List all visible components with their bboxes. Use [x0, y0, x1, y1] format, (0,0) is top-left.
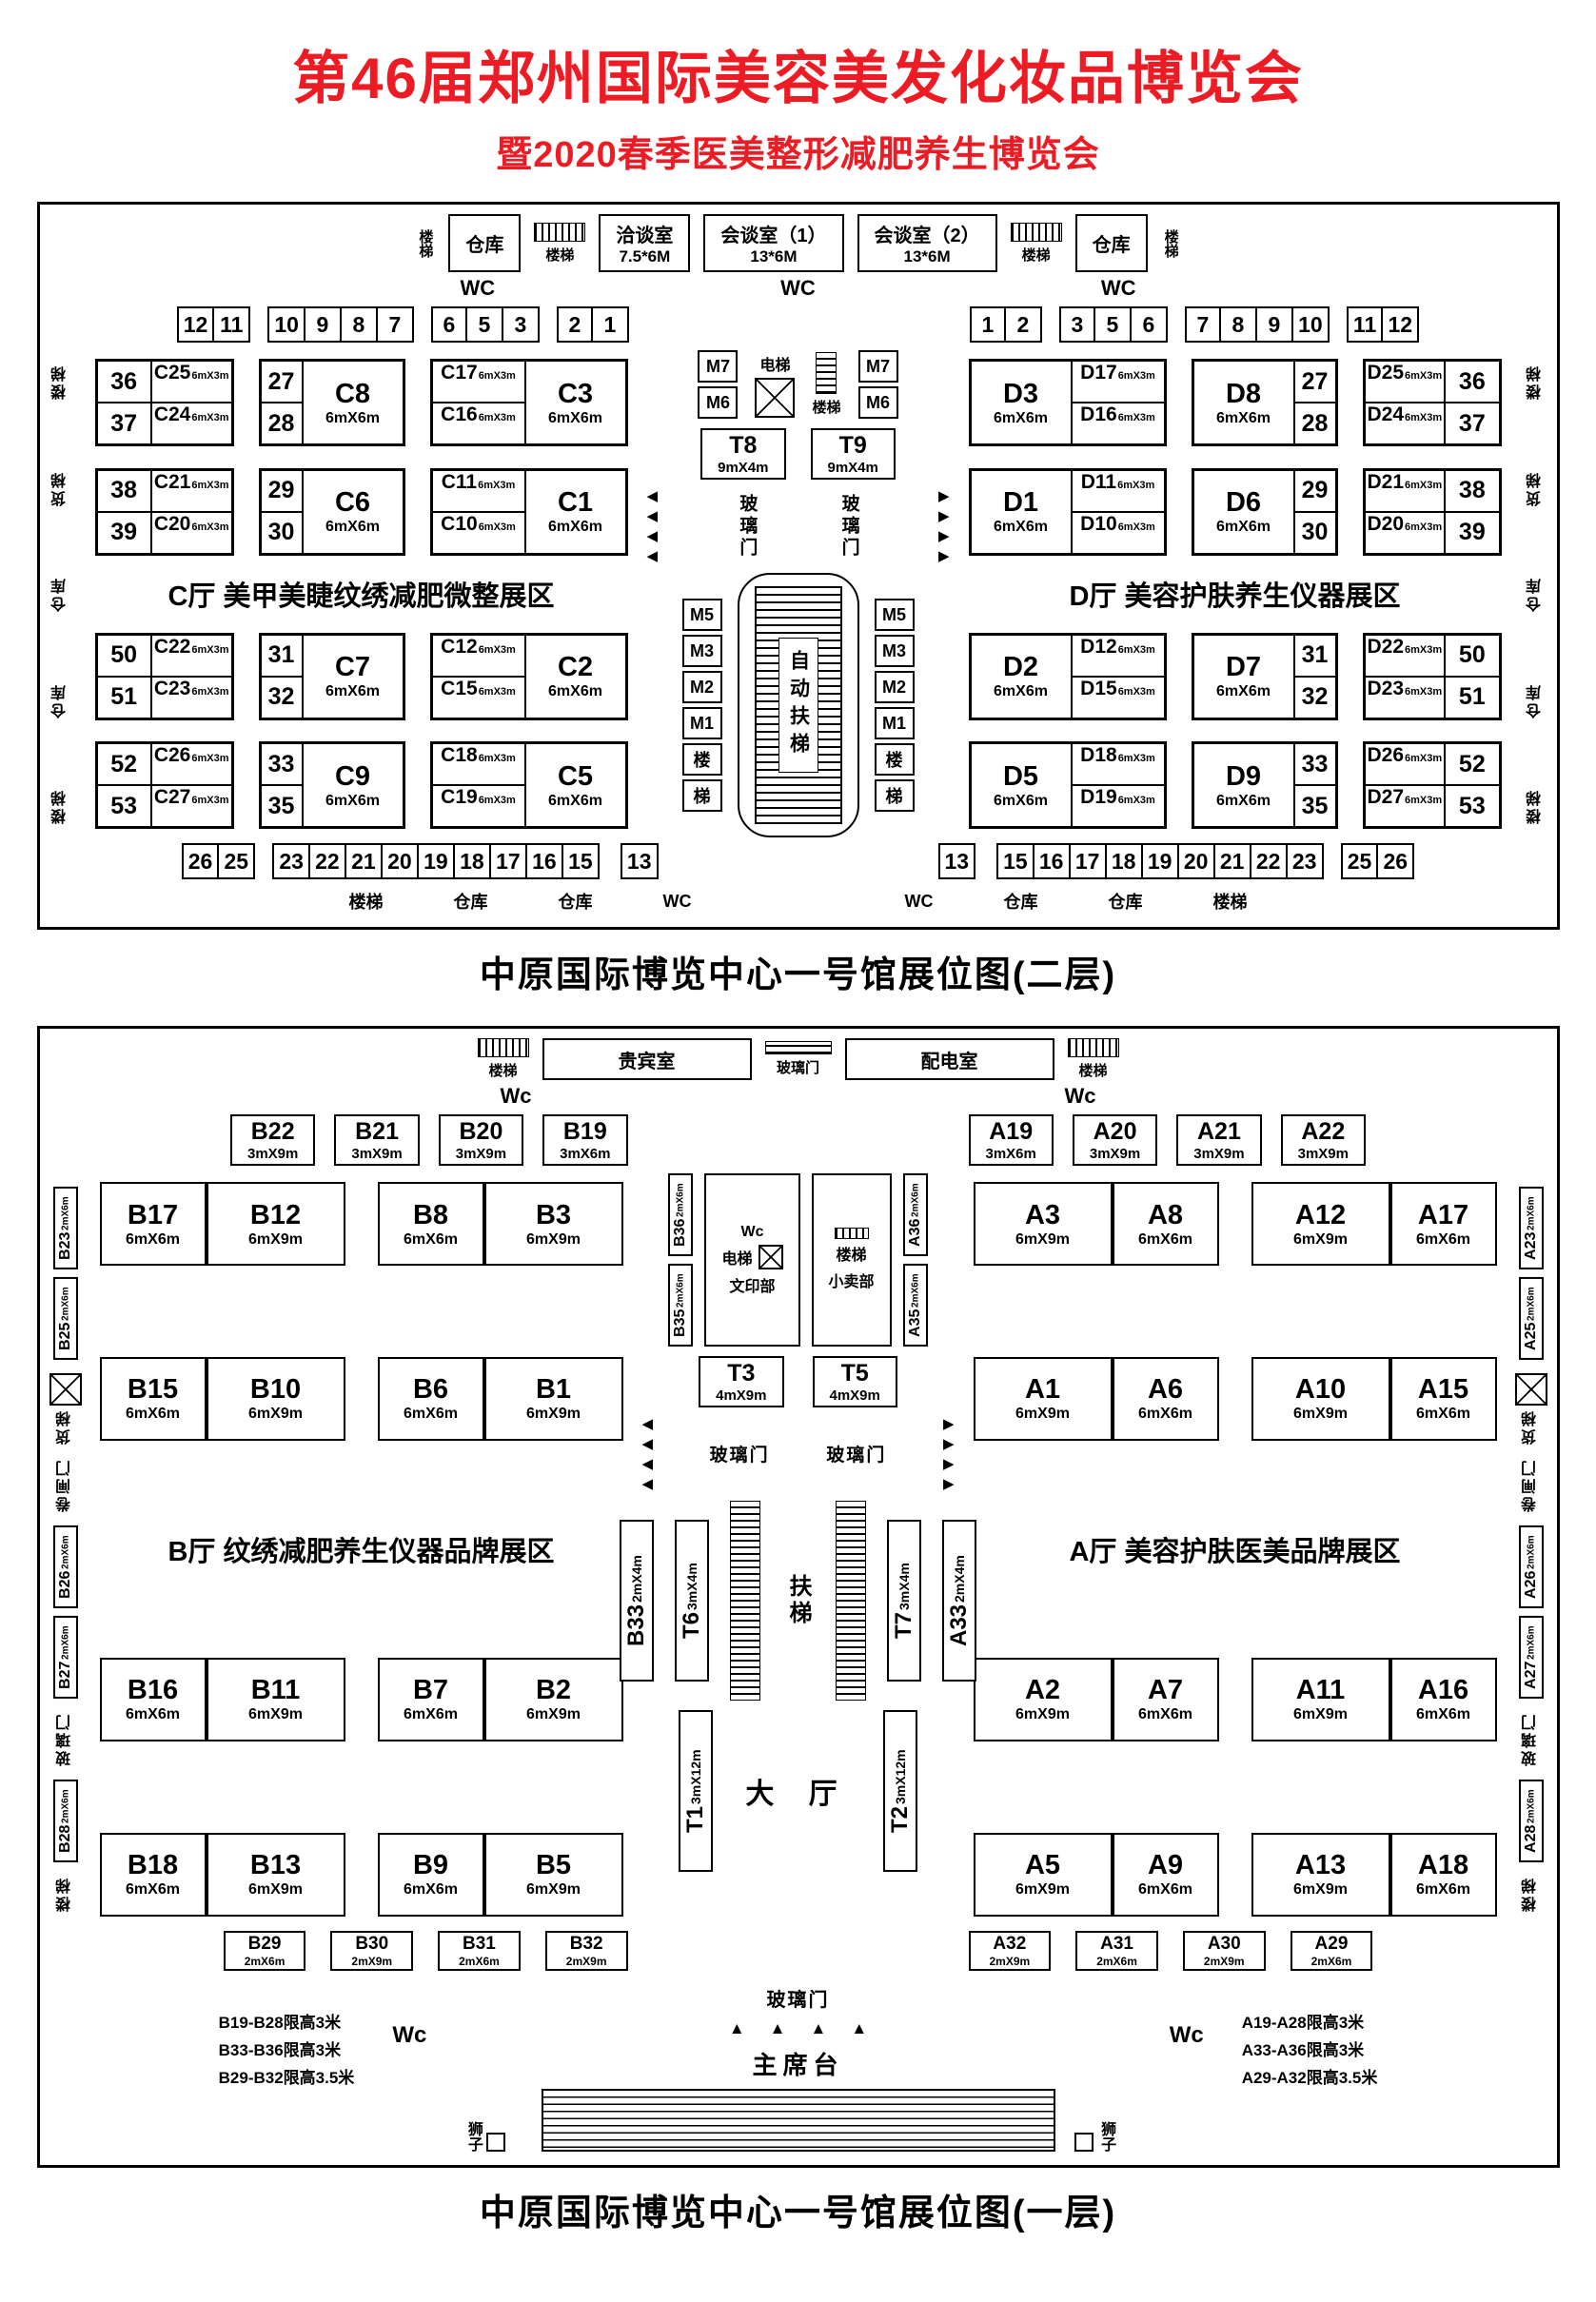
floor1-right-edge: A232mX6mA252mX6m 货梯 卷闸门 A262mX6mA272mX6m…	[1510, 1173, 1552, 1925]
glass-doors: ◀◀◀◀ 玻璃门 玻璃门 ▶▶▶▶	[641, 489, 956, 563]
booth-number: 29	[1294, 470, 1336, 512]
booth-id: A30	[1204, 1934, 1245, 1955]
stage-label: 主席台	[752, 2046, 843, 2081]
booth-size: 6mX6m	[994, 410, 1048, 427]
t1-booth: T13mX12m	[679, 1710, 713, 1872]
booth: B186mX6m	[100, 1833, 207, 1917]
right-edge-booths: A262mX6mA272mX6m	[1519, 1525, 1544, 1699]
booth-size: 6mX9m	[248, 1881, 303, 1899]
booth-number: 12	[177, 306, 215, 343]
booth: A76mX6m	[1113, 1658, 1219, 1741]
booth-size: 6mX3m	[1405, 412, 1442, 423]
booth: D96mX6m	[1193, 743, 1294, 827]
label-cell: M5	[682, 599, 722, 631]
booth-code: D166mX3m	[1072, 403, 1165, 444]
hall-row: D26mX6mD126mX3mD156mX3mD76mX6m3132D226mX…	[969, 633, 1502, 720]
booth-id: B5	[536, 1850, 571, 1881]
booth-size: 6mX6m	[325, 793, 380, 810]
booth-pair-row: 53C276mX3m	[97, 785, 232, 827]
booth-id: B7	[413, 1675, 448, 1706]
label-cell: 楼	[682, 743, 722, 776]
stairs-label: 楼梯	[1161, 229, 1181, 258]
booth-id: T2	[887, 1806, 914, 1833]
booth-id: A9	[1148, 1850, 1183, 1881]
booth-small-column: 3335	[261, 743, 303, 827]
booth-size: 6mX9m	[526, 1406, 581, 1423]
booth-code: C206mX3m	[151, 512, 232, 554]
booth-small-column: C186mX3mC196mX3m	[432, 743, 525, 827]
booth-id: B26	[57, 1570, 74, 1598]
booth: C96mX6m	[303, 743, 404, 827]
booth-size: 2mX6m	[1526, 1535, 1536, 1569]
booth-id: A10	[1295, 1374, 1346, 1406]
vip-room: 贵宾室	[542, 1038, 752, 1080]
booth-id: A2	[1025, 1675, 1060, 1706]
booth-code: C186mX3m	[432, 743, 525, 785]
booth-number-group: 356	[1059, 306, 1168, 343]
meeting-room-1: 会谈室（1） 13*6M	[703, 214, 843, 272]
booth-number: 53	[1445, 785, 1499, 827]
glass-door-label: 玻璃门	[777, 1057, 819, 1077]
booth-size: 6mX3m	[1405, 644, 1442, 656]
booth-size: 6mX6m	[994, 683, 1048, 700]
booth-size: 6mX9m	[248, 1231, 303, 1249]
booth-block: C186mX3mC196mX3mC56mX6m	[430, 741, 628, 829]
booth-id: C6	[335, 487, 370, 519]
lion-right: 狮子	[1074, 2121, 1132, 2152]
booth-number: 35	[1294, 785, 1336, 827]
booth-id: A21	[1193, 1118, 1244, 1146]
floor2-top-booth-strip: 12111098765321 12356789101112	[53, 306, 1544, 343]
booth-id: A26	[1523, 1570, 1540, 1598]
booth-id: B33	[623, 1604, 650, 1646]
booth-number: 36	[1445, 361, 1499, 403]
booth-size: 6mX3m	[191, 480, 228, 491]
booth-code: C236mX3m	[151, 677, 232, 718]
floor2-right-edge: 楼梯货梯仓库仓库楼梯	[1515, 350, 1557, 837]
left-arrows: ◀◀◀◀	[642, 1417, 654, 1491]
booth-size: 6mX3m	[479, 412, 516, 423]
booth-id: B1	[536, 1374, 571, 1406]
booth-block: 2728C86mX6m	[259, 359, 405, 446]
label-cell: 楼梯	[49, 788, 72, 824]
booth-id: D3	[1003, 379, 1038, 410]
label-cell: M6	[858, 386, 898, 419]
d-hall: D36mX6mD176mX3mD166mX3mD86mX6m2728D256mX…	[969, 350, 1502, 837]
booth-code: C276mX3m	[151, 785, 232, 827]
booth-number-group: 12	[970, 306, 1042, 343]
label-cell: 楼梯	[349, 889, 384, 914]
booth-number: 3	[1059, 306, 1095, 343]
booth: A272mX6m	[1519, 1616, 1544, 1699]
floor1-top-booth-row: B223mX9mB213mX9mB203mX9mB193mX6m A193mX6…	[53, 1114, 1544, 1166]
booth: A136mX9m	[1251, 1833, 1390, 1917]
elevator-block: 电梯	[755, 352, 795, 418]
booth-size: 6mX3m	[191, 644, 228, 656]
floor2-bottom-booth-strip: 2625232221201918171615 13 13 15161718192…	[53, 843, 1544, 879]
floor1-main: B232mX6mB252mX6m 货梯 卷闸门 B262mX6mB272mX6m…	[53, 1173, 1544, 1925]
booth: A186mX6m	[1390, 1833, 1497, 1917]
booth-size: 6mX6m	[1416, 1881, 1470, 1899]
booth-pair-row: 52C266mX3m	[97, 743, 232, 785]
booth: A166mX6m	[1390, 1658, 1497, 1741]
booth-number: 21	[346, 843, 383, 879]
booth-id: C5	[558, 761, 593, 793]
booth-size: 6mX6m	[994, 793, 1048, 810]
label-cell: M6	[698, 386, 738, 419]
label-cell: 货梯	[49, 470, 72, 506]
booth-number: 12	[1383, 306, 1419, 343]
booth-number-group: 151617181920212223	[996, 843, 1324, 879]
booth-number-group: 2625	[182, 843, 256, 879]
booth-id: A16	[1418, 1675, 1468, 1706]
booth-code-id: D16	[1080, 403, 1117, 426]
escalator-row: B332mX4m T63mX4m 扶梯 T73mX4m A332mX4m	[620, 1501, 976, 1701]
height-note: B33-B36限高3米	[219, 2036, 355, 2060]
booth-id: B28	[57, 1824, 74, 1852]
label-cell: 楼	[875, 743, 915, 776]
b-height-notes: B19-B28限高3米B33-B36限高3米B29-B32限高3.5米	[219, 1984, 355, 2088]
booth-size: 6mX6m	[1416, 1231, 1470, 1249]
booth-number: 18	[455, 843, 491, 879]
booth-code-id: C22	[154, 636, 191, 659]
booth-code: D256mX3m	[1365, 361, 1446, 403]
booth-code-id: D27	[1368, 786, 1405, 809]
center-left-booths: B362mX6mB352mX6m	[668, 1173, 693, 1347]
stairs-label: 楼梯	[54, 1876, 77, 1912]
booth-code: C166mX3m	[432, 403, 525, 444]
booth: B203mX9m	[439, 1114, 523, 1166]
hall-row: 52C266mX3m53C276mX3m3335C96mX6mC186mX3mC…	[95, 741, 628, 829]
glass-doors-mid: ◀◀◀◀ 玻璃门 玻璃门 ▶▶▶▶	[637, 1417, 960, 1491]
booth-id: A3	[1025, 1200, 1060, 1231]
booth-number: 38	[97, 470, 151, 512]
booth-size: 6mX6m	[1138, 1406, 1192, 1423]
lobby-label: 大 厅	[745, 1770, 850, 1812]
escalator-icon	[730, 1501, 760, 1701]
booth-block: 2930C66mX6m	[259, 468, 405, 556]
left-edge-booths: B232mX6mB252mX6m	[53, 1187, 78, 1360]
booth-size: 6mX3m	[191, 686, 228, 698]
booth: A292mX6m	[1291, 1931, 1373, 1971]
booth-number: 52	[97, 743, 151, 785]
booth-number: 33	[1294, 743, 1336, 785]
booth-size: 6mX3m	[191, 795, 228, 806]
booth-number: 6	[1132, 306, 1168, 343]
hall-zone-label: B厅 纹绣减肥养生仪器品牌展区	[100, 1529, 623, 1569]
entrance-canopy-icon	[765, 1041, 832, 1054]
booth-size: 3mX9m	[456, 1146, 506, 1162]
booth-size: 6mX6m	[994, 519, 1048, 536]
stairs-label: 楼梯	[1022, 245, 1051, 265]
booth-id: D1	[1003, 487, 1038, 519]
booth-size: 2mX6m	[245, 1955, 286, 1968]
booth-number: 31	[1294, 635, 1336, 677]
floor2-wc-row: WC WC WC	[53, 276, 1544, 301]
booth-code: D226mX3m	[1365, 635, 1446, 677]
booth-size: 4mX9m	[716, 1387, 766, 1404]
booth-size: 6mX9m	[1015, 1706, 1070, 1723]
booth-size: 3mX9m	[351, 1146, 402, 1162]
booth-id: C1	[558, 487, 593, 519]
label-cell: 仓库	[1004, 889, 1038, 914]
label-cell: M3	[682, 635, 722, 667]
right-edge-booths: A282mX6m	[1519, 1780, 1544, 1862]
roller-door-label: 卷闸门	[54, 1458, 77, 1512]
booth-block: D56mX6mD186mX3mD196mX3m	[969, 741, 1167, 829]
booth-size: 6mX3m	[1118, 644, 1155, 656]
booth-block: C116mX3mC106mX3mC16mX6m	[430, 468, 628, 556]
booth-number: 16	[1034, 843, 1071, 879]
booth-code-id: C18	[441, 744, 478, 767]
booth-size: 3mX6m	[986, 1146, 1036, 1162]
stairs-label: 楼梯	[837, 1242, 867, 1265]
booth-size: 6mX6m	[404, 1406, 458, 1423]
floor1-plan: 楼梯 贵宾室 玻璃门 配电室 楼梯 Wc Wc B223mX9mB213mX9m…	[37, 1026, 1560, 2168]
b-hall: B176mX6mB126mX9mB86mX6mB36mX9mB156mX6mB1…	[100, 1173, 623, 1925]
booth-size: 3mX12m	[893, 1749, 908, 1804]
booth-number-group: 1211	[177, 306, 251, 343]
booth-number-group: 21	[557, 306, 629, 343]
booth-id: D5	[1003, 761, 1038, 793]
lion-statue-icon	[486, 2133, 505, 2152]
booth-size: 2mX6m	[60, 1196, 70, 1230]
booth-number: 19	[419, 843, 455, 879]
booth-id: A17	[1418, 1200, 1468, 1231]
warehouse-label: 仓库	[465, 229, 503, 257]
booth-code: C196mX3m	[432, 785, 525, 827]
booth-size: 2mX6m	[1096, 1955, 1137, 1968]
booth-block: D96mX6m3335	[1192, 741, 1338, 829]
booth-pair-row: 37C246mX3m	[97, 403, 232, 444]
booth: A106mX9m	[1251, 1357, 1390, 1441]
stairs-icon	[816, 352, 837, 394]
booth-id: C3	[558, 379, 593, 410]
booth-code-id: D26	[1368, 744, 1405, 767]
booth: C66mX6m	[303, 470, 404, 554]
booth-number: 39	[97, 512, 151, 554]
elevator-icon	[759, 1245, 783, 1269]
booth: B96mX6m	[378, 1833, 484, 1917]
booth: A16mX9m	[974, 1357, 1113, 1441]
booth-size: 6mX3m	[478, 480, 515, 491]
booth-code-id: C17	[441, 362, 478, 384]
m-booths-left: M7M6	[698, 350, 738, 419]
booth-id: A29	[1311, 1934, 1352, 1955]
power-room-label: 配电室	[862, 1046, 1037, 1073]
booth-id: A31	[1096, 1934, 1137, 1955]
booth-number-group: 78910	[1185, 306, 1330, 343]
t5-booth: T54mX9m	[813, 1356, 897, 1407]
booth: D86mX6m	[1193, 361, 1294, 444]
booth: A203mX9m	[1073, 1114, 1157, 1166]
hall-row: D56mX6mD186mX3mD196mX3mD96mX6m3335D266mX…	[969, 741, 1502, 829]
booth-id: T5	[830, 1360, 880, 1387]
booth: T63mX4m	[675, 1520, 709, 1682]
booth-id: A33	[946, 1604, 973, 1646]
booth: A156mX6m	[1390, 1357, 1497, 1441]
stairs-block: 楼梯	[1068, 1038, 1119, 1080]
room-name: 洽谈室	[616, 220, 673, 247]
booth-pair-row: 39C206mX3m	[97, 512, 232, 554]
stairs-label: 楼梯	[1520, 1876, 1543, 1912]
booth-block: 52C266mX3m53C276mX3m	[95, 741, 234, 829]
booth-size: 6mX9m	[248, 1706, 303, 1723]
booth: B16mX9m	[484, 1357, 623, 1441]
booth: B282mX6m	[53, 1780, 78, 1862]
booth-id: A5	[1025, 1850, 1060, 1881]
booth-pair-row: 38C216mX3m	[97, 470, 232, 512]
booth-size: 6mX9m	[526, 1231, 581, 1249]
booth: A262mX6m	[1519, 1525, 1544, 1608]
booth-id: T1	[682, 1806, 709, 1833]
booth-code-id: D10	[1080, 513, 1117, 536]
booth: B116mX9m	[207, 1658, 345, 1741]
glass-door-label: 玻璃门	[1520, 1712, 1543, 1766]
hall-zone-label: C厅 美甲美睫纹绣减肥微整展区	[95, 574, 628, 614]
entrance-arrows: ▲▲▲▲	[729, 2019, 867, 2038]
booth-code: C126mX3m	[432, 635, 525, 677]
booth: A232mX6m	[1519, 1187, 1544, 1269]
a-perimeter-top: A193mX6mA203mX9mA213mX9mA223mX9m	[969, 1114, 1367, 1166]
booth-size: 6mX3m	[191, 370, 228, 382]
service-room-left: Wc 电梯 文印部	[704, 1173, 799, 1347]
booth-small-column: 2728	[1294, 361, 1336, 444]
booth-id: A8	[1148, 1200, 1183, 1231]
booth-small-column: 2930	[261, 470, 303, 554]
label-cell: 仓库	[1109, 889, 1143, 914]
hall-row: B186mX6mB136mX9mB96mX6mB56mX9m	[100, 1833, 623, 1917]
booth-small-column: C126mX3mC156mX3m	[432, 635, 525, 718]
booth-size: 2mX4m	[629, 1555, 644, 1603]
height-note: A29-A32限高3.5米	[1242, 2064, 1378, 2088]
booth-code: C106mX3m	[432, 512, 525, 554]
booth: A332mX4m	[942, 1520, 976, 1682]
booth-number: 53	[97, 785, 151, 827]
booth: B76mX6m	[378, 1658, 484, 1741]
booth-id: A1	[1025, 1374, 1060, 1406]
floor1-top-band: 楼梯 贵宾室 玻璃门 配电室 楼梯	[53, 1038, 1544, 1080]
booth-id: A19	[986, 1118, 1036, 1146]
elevator-label: 电梯	[759, 352, 790, 375]
booth: B312mX6m	[438, 1931, 521, 1971]
booth-number: 21	[1215, 843, 1251, 879]
room-size: 13*6M	[720, 247, 826, 266]
booth: B352mX6m	[668, 1264, 693, 1347]
label-cell: 楼梯	[1525, 788, 1547, 824]
booth-size: 6mX9m	[1015, 1406, 1070, 1423]
booth-id: A25	[1523, 1323, 1540, 1350]
booth-size: 6mX6m	[325, 683, 380, 700]
floor1-left-edge: B232mX6mB252mX6m 货梯 卷闸门 B262mX6mB272mX6m…	[45, 1173, 87, 1925]
booth: A56mX9m	[974, 1833, 1113, 1917]
vip-room-label: 贵宾室	[560, 1046, 735, 1073]
lion-label: 狮子	[464, 2121, 482, 2152]
booth-number: 11	[214, 306, 250, 343]
booth-id: B36	[672, 1219, 689, 1247]
booth-number: 9	[305, 306, 342, 343]
stairs-label: 楼梯	[1078, 1060, 1107, 1080]
hall-row: 36C256mX3m37C246mX3m2728C86mX6mC176mX3mC…	[95, 359, 628, 446]
booth-code: C226mX3m	[151, 635, 232, 677]
booth-id: B16	[128, 1675, 178, 1706]
booth-id: A18	[1418, 1850, 1468, 1881]
booth-code-id: C21	[154, 471, 191, 494]
booth-small-column: 2728	[261, 361, 303, 444]
booth: B136mX9m	[207, 1833, 345, 1917]
booth-size: 6mX3m	[1405, 753, 1442, 764]
strip-right: 1516171819202122232526	[996, 843, 1414, 879]
booth: B176mX6m	[100, 1182, 207, 1266]
booth-code: C266mX3m	[151, 743, 232, 785]
t2-booth: T23mX12m	[883, 1710, 917, 1872]
booth: B262mX6m	[53, 1525, 78, 1608]
booth-size: 9mX4m	[718, 460, 768, 476]
right-edge-booths: A232mX6mA252mX6m	[1519, 1187, 1544, 1360]
booth-size: 6mX3m	[1405, 480, 1442, 491]
stairs-label: 楼梯	[812, 397, 840, 417]
booth-code-id: C19	[441, 786, 478, 809]
booth: B86mX6m	[378, 1182, 484, 1266]
booth-number-group: 232221201918171615	[272, 843, 600, 879]
booth-id: B11	[251, 1675, 301, 1706]
stairs-label: 楼梯	[488, 1060, 517, 1080]
wc-label: Wc	[392, 1984, 426, 2049]
booth-code-id: D12	[1080, 636, 1117, 659]
booth-size: 3mX4m	[897, 1563, 912, 1610]
b-bottom-booths: B292mX6mB302mX9mB312mX6mB322mX9m	[224, 1931, 628, 1971]
booth-code-id: C16	[441, 403, 478, 426]
booth-block: 3132C76mX6m	[259, 633, 405, 720]
booth-size: 2mX6m	[676, 1183, 686, 1217]
booth-code: D126mX3m	[1072, 635, 1165, 677]
wc-label: WC	[1101, 276, 1136, 301]
booth-number: 25	[1341, 843, 1379, 879]
wc-label: WC	[461, 276, 496, 301]
stairs-block: 楼梯	[534, 214, 585, 272]
stage-platform-row: 狮子 狮子	[464, 2089, 1131, 2152]
booth-block: D26mX6mD126mX3mD156mX3m	[969, 633, 1167, 720]
booth-number-group: 2526	[1341, 843, 1415, 879]
label-cell: M7	[698, 350, 738, 383]
booth-size: 2mX6m	[676, 1273, 686, 1308]
booth-block: 50C226mX3m51C236mX3m	[95, 633, 234, 720]
booth-id: D9	[1226, 761, 1261, 793]
freight-elevator-icon	[49, 1373, 82, 1406]
room-size: 7.5*6M	[616, 247, 673, 266]
meeting-room-0: 洽谈室 7.5*6M	[599, 214, 690, 272]
booth-number: 6	[431, 306, 467, 343]
floor2-bottom-band: 楼梯仓库仓库WCWC仓库仓库楼梯	[53, 889, 1544, 914]
booth-id: B25	[57, 1323, 74, 1350]
glass-door-label: 玻璃门	[767, 1984, 830, 2012]
booth-size: 3mX9m	[1298, 1146, 1349, 1162]
booth-code-id: C10	[441, 513, 478, 536]
booth-code-id: C11	[442, 471, 477, 494]
booth-id: B32	[566, 1934, 607, 1955]
booth: B193mX6m	[542, 1114, 627, 1166]
booth-id: A6	[1148, 1374, 1183, 1406]
hall-row: A26mX9mA76mX6mA116mX9mA166mX6m	[974, 1658, 1497, 1741]
freight-elevator: 货梯	[49, 1373, 82, 1445]
booth-number: 28	[261, 403, 303, 444]
escalator-label: 自动扶梯	[778, 638, 818, 773]
booth-size: 6mX6m	[126, 1706, 180, 1723]
booth-size: 6mX9m	[1015, 1881, 1070, 1899]
booth-id: A15	[1418, 1374, 1468, 1406]
booth-size: 2mX9m	[566, 1955, 607, 1968]
booth-size: 3mX9m	[1090, 1146, 1140, 1162]
